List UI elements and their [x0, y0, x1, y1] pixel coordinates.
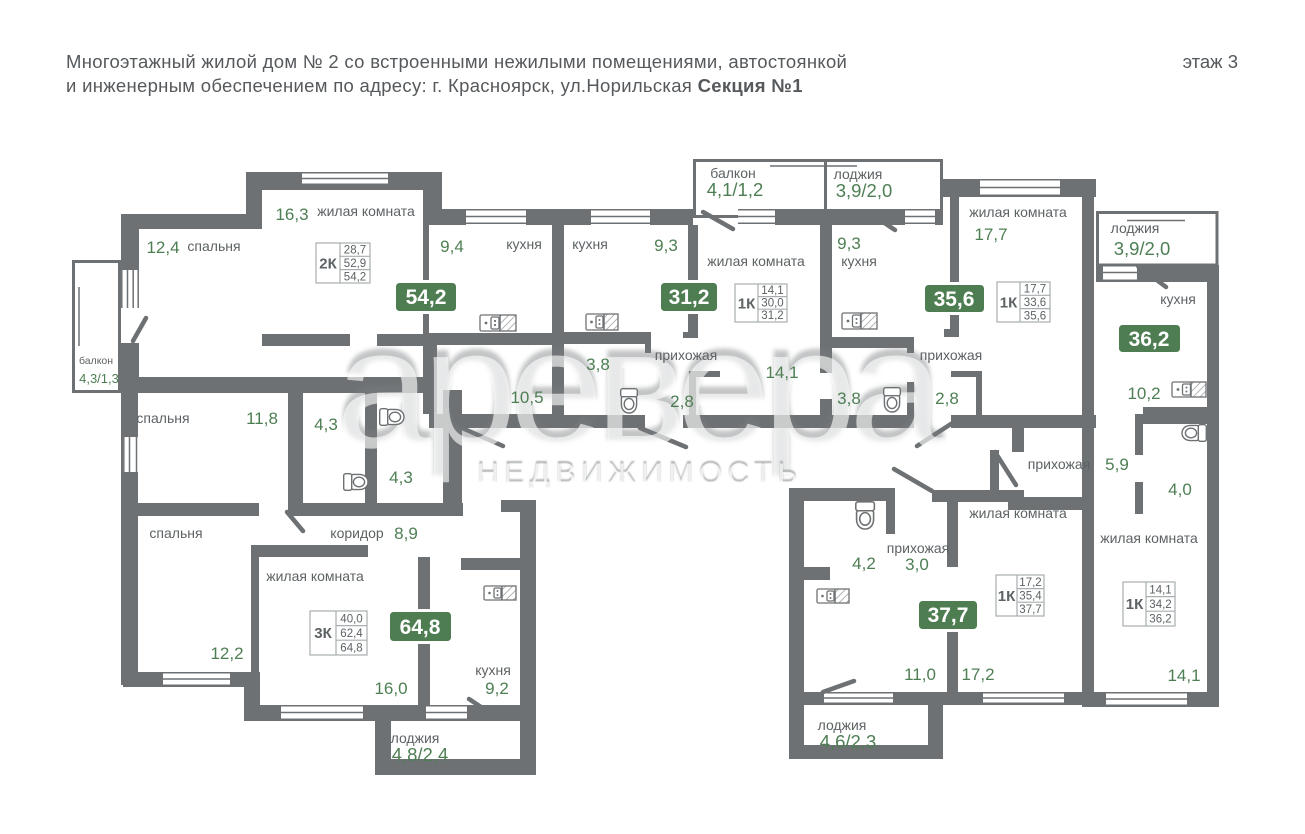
svg-text:8,9: 8,9: [394, 524, 418, 543]
svg-text:коридор: коридор: [330, 525, 384, 541]
svg-text:30,0: 30,0: [761, 298, 783, 310]
svg-text:жилая комната: жилая комната: [969, 204, 1067, 220]
svg-text:жилая комната: жилая комната: [317, 203, 415, 219]
svg-text:3,9/2,0: 3,9/2,0: [836, 180, 893, 201]
svg-text:10,2: 10,2: [1127, 384, 1160, 403]
svg-text:9,4: 9,4: [440, 237, 464, 256]
svg-text:НЕДВИЖИМОСТЬ: НЕДВИЖИМОСТЬ: [477, 458, 803, 491]
svg-text:жилая комната: жилая комната: [266, 568, 364, 584]
svg-text:34,2: 34,2: [1149, 599, 1171, 611]
svg-text:4,2: 4,2: [852, 554, 876, 573]
svg-text:жилая комната: жилая комната: [1100, 530, 1198, 546]
svg-text:3К: 3К: [314, 625, 332, 642]
svg-text:кухня: кухня: [841, 253, 877, 269]
svg-text:4,3: 4,3: [389, 468, 413, 487]
svg-text:37,7: 37,7: [928, 604, 969, 627]
svg-text:3,0: 3,0: [905, 555, 929, 574]
svg-text:10,5: 10,5: [510, 388, 543, 407]
svg-text:54,2: 54,2: [344, 271, 366, 283]
svg-text:1К: 1К: [738, 296, 756, 313]
svg-text:14,1: 14,1: [761, 285, 783, 297]
svg-text:2,8: 2,8: [670, 392, 694, 411]
svg-text:4,1/1,2: 4,1/1,2: [707, 179, 764, 200]
svg-text:прихожая: прихожая: [655, 347, 717, 363]
svg-text:9,2: 9,2: [485, 679, 509, 698]
svg-text:62,4: 62,4: [340, 628, 363, 640]
svg-text:прихожая: прихожая: [1028, 456, 1090, 472]
svg-text:17,7: 17,7: [974, 225, 1007, 244]
svg-text:14,1: 14,1: [1149, 584, 1171, 596]
svg-text:1К: 1К: [998, 588, 1016, 605]
svg-text:17,2: 17,2: [961, 665, 994, 684]
svg-text:3,9/2,0: 3,9/2,0: [1114, 238, 1171, 259]
svg-text:кухня: кухня: [1160, 291, 1196, 307]
svg-text:5,9: 5,9: [1105, 455, 1129, 474]
svg-text:и инженерным обеспечением по а: и инженерным обеспечением по адресу: г. …: [66, 75, 803, 96]
svg-text:2,8: 2,8: [935, 389, 959, 408]
svg-text:17,2: 17,2: [1019, 577, 1041, 589]
svg-text:лоджия: лоджия: [834, 166, 883, 182]
svg-text:1К: 1К: [1000, 295, 1018, 312]
svg-text:3,8: 3,8: [837, 389, 861, 408]
svg-text:31,2: 31,2: [761, 310, 783, 322]
svg-text:14,1: 14,1: [765, 363, 798, 382]
svg-text:2К: 2К: [319, 256, 337, 273]
svg-text:33,6: 33,6: [1024, 297, 1046, 309]
svg-text:14,1: 14,1: [1167, 666, 1200, 685]
svg-text:4,3: 4,3: [314, 415, 338, 434]
svg-text:4,6/2,3: 4,6/2,3: [820, 731, 877, 752]
svg-text:40,0: 40,0: [340, 613, 362, 625]
svg-text:1К: 1К: [1126, 596, 1144, 613]
svg-text:28,7: 28,7: [344, 245, 366, 257]
svg-text:прихожая: прихожая: [920, 347, 982, 363]
svg-text:лоджия: лоджия: [391, 730, 440, 746]
svg-text:11,8: 11,8: [246, 409, 278, 428]
svg-text:37,7: 37,7: [1019, 604, 1041, 616]
svg-text:36,2: 36,2: [1149, 614, 1171, 626]
svg-text:9,3: 9,3: [654, 236, 678, 255]
svg-text:жилая комната: жилая комната: [707, 253, 805, 269]
svg-text:спальня: спальня: [149, 525, 202, 541]
svg-text:9,3: 9,3: [837, 234, 861, 253]
svg-text:31,2: 31,2: [669, 286, 710, 309]
svg-text:17,7: 17,7: [1024, 284, 1046, 296]
svg-text:3,8: 3,8: [586, 355, 610, 374]
svg-text:прихожая: прихожая: [887, 540, 949, 556]
svg-text:54,2: 54,2: [406, 286, 447, 309]
svg-text:Многоэтажный жилой дом № 2 со: Многоэтажный жилой дом № 2 со встроенным…: [66, 51, 847, 72]
svg-text:12,2: 12,2: [210, 644, 243, 663]
svg-text:балкон: балкон: [79, 355, 113, 367]
svg-text:кухня: кухня: [572, 236, 608, 252]
svg-text:36,2: 36,2: [1129, 328, 1170, 351]
svg-text:жилая комната: жилая комната: [969, 505, 1067, 521]
svg-text:35,4: 35,4: [1019, 591, 1042, 603]
svg-text:этаж 3: этаж 3: [1183, 51, 1238, 72]
svg-text:лоджия: лоджия: [818, 717, 867, 733]
svg-text:11,0: 11,0: [904, 665, 936, 684]
svg-text:спальня: спальня: [136, 410, 189, 426]
svg-text:4,8/2,4: 4,8/2,4: [392, 744, 449, 765]
svg-text:64,8: 64,8: [340, 643, 362, 655]
svg-text:лоджия: лоджия: [1111, 220, 1160, 236]
svg-text:4,3/1,3: 4,3/1,3: [79, 371, 119, 386]
svg-text:16,3: 16,3: [275, 205, 308, 224]
svg-text:кухня: кухня: [475, 662, 511, 678]
svg-text:кухня: кухня: [506, 236, 542, 252]
svg-text:52,9: 52,9: [344, 258, 366, 270]
svg-text:16,0: 16,0: [374, 679, 407, 698]
svg-text:спальня: спальня: [187, 238, 240, 254]
svg-text:балкон: балкон: [710, 165, 755, 181]
svg-text:64,8: 64,8: [400, 616, 441, 639]
svg-text:35,6: 35,6: [1024, 310, 1046, 322]
svg-text:12,4: 12,4: [146, 238, 179, 257]
svg-text:35,6: 35,6: [934, 288, 975, 311]
svg-text:4,0: 4,0: [1168, 480, 1192, 499]
